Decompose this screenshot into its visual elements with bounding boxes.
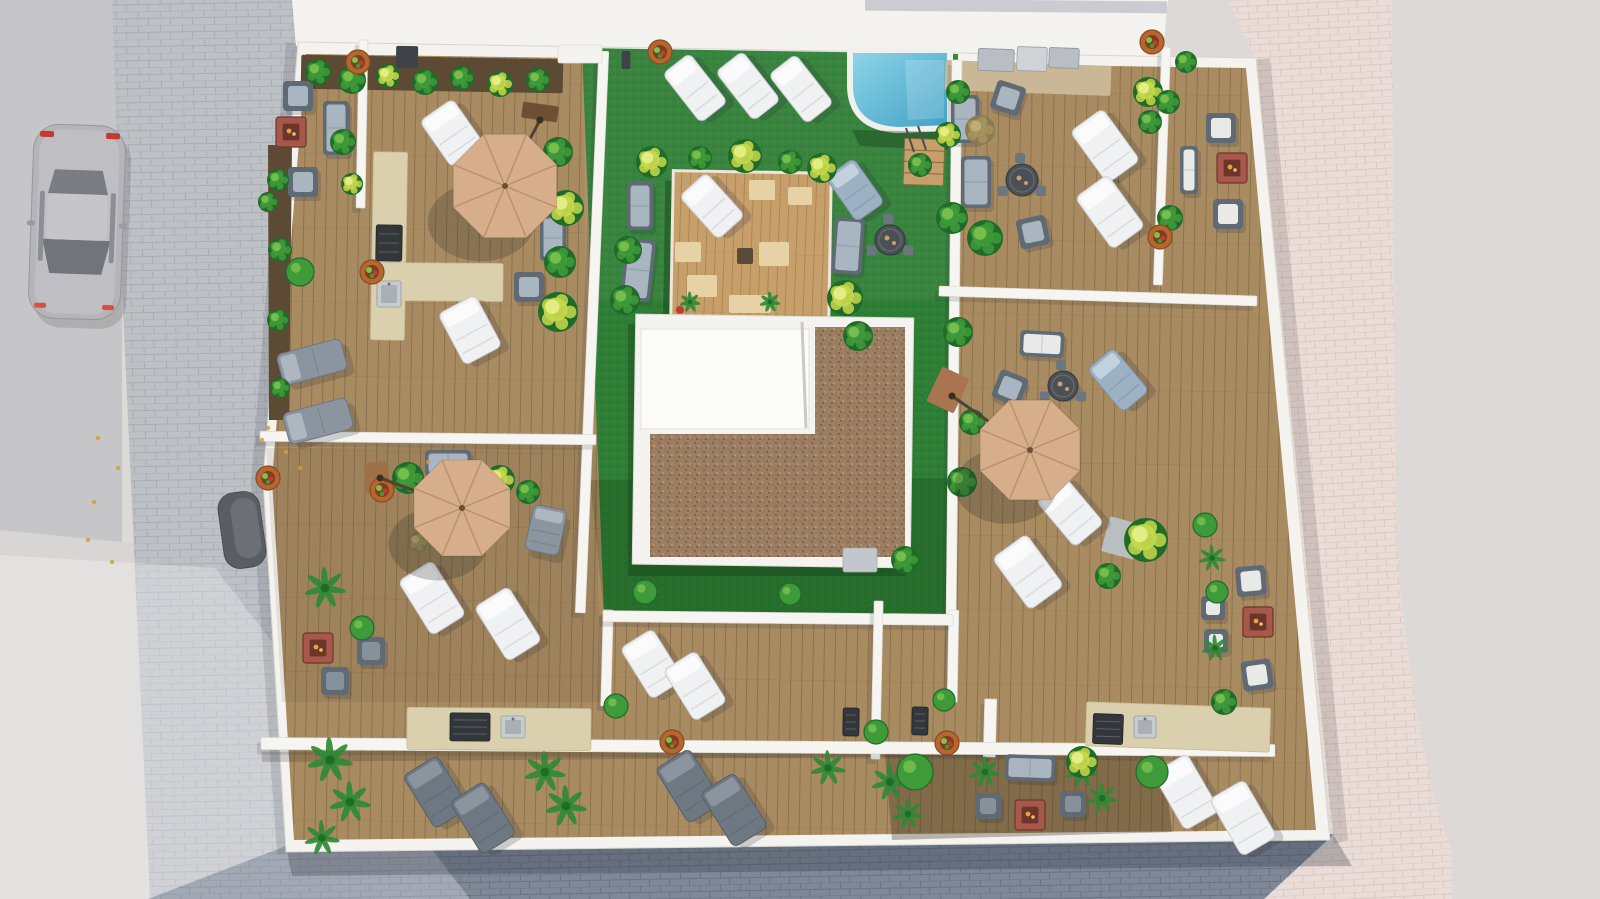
plant-bush — [614, 236, 642, 264]
plant-boxwood — [286, 258, 314, 286]
plant-bush — [450, 66, 474, 90]
sofa — [1019, 330, 1068, 362]
plant-bush — [1124, 518, 1168, 562]
plant-bush — [305, 59, 331, 85]
bbq-grill — [912, 707, 928, 735]
plant-bush — [1066, 746, 1098, 778]
plant-boxwood — [1136, 756, 1168, 788]
plant-bush — [258, 192, 278, 212]
armchair — [1206, 113, 1239, 147]
wall-pillar — [558, 45, 602, 63]
armchair — [975, 793, 1004, 823]
plant-bush — [267, 309, 289, 331]
plant-bush — [946, 80, 970, 104]
plant-bush — [688, 146, 712, 170]
plant-bush — [908, 153, 932, 177]
fallen-leaf — [116, 466, 120, 470]
armchair — [288, 167, 321, 201]
plant-bush — [935, 122, 961, 148]
fallen-leaf — [92, 500, 96, 504]
plant-bush — [936, 202, 968, 234]
garden-light-bollard — [622, 51, 631, 69]
kitchen-sink — [1134, 716, 1156, 738]
flower-pot — [935, 731, 959, 755]
sofa — [1180, 146, 1201, 198]
bbq-grill — [843, 708, 859, 736]
utility-box — [843, 548, 877, 572]
plant-bush — [728, 139, 762, 173]
seat-cushion — [675, 242, 701, 262]
armchair — [283, 81, 316, 115]
kitchen-sink — [501, 716, 525, 738]
plant-bush — [1156, 90, 1180, 114]
plant-bush — [341, 173, 363, 195]
plant-bush — [967, 220, 1003, 256]
plant-bush — [843, 321, 873, 351]
armchair — [357, 637, 388, 669]
roof-skylight — [1017, 46, 1048, 71]
plant-boxwood — [604, 694, 628, 718]
flower-pot — [256, 466, 280, 490]
fallen-leaf — [96, 436, 100, 440]
armchair — [321, 667, 352, 699]
flower-pot — [346, 50, 370, 74]
plant-boxwood — [864, 720, 888, 744]
bbq-grill — [450, 713, 490, 741]
roof-skylight — [978, 48, 1015, 71]
seat-cushion — [788, 187, 812, 205]
roof-skylight — [1049, 47, 1080, 68]
pool-shelf — [905, 60, 944, 120]
sofa — [1004, 754, 1058, 786]
fallen-leaf — [110, 560, 114, 564]
seat-cushion — [749, 180, 775, 200]
fallen-leaf — [266, 426, 270, 430]
plant-bush — [1138, 110, 1162, 134]
flower-pot — [360, 260, 384, 284]
plant-bush — [807, 153, 837, 183]
plant-bush — [268, 238, 292, 262]
fire-table — [1015, 800, 1045, 830]
parked-car — [23, 123, 132, 329]
plant-bush — [544, 246, 576, 278]
flower-pot — [1140, 30, 1164, 54]
stairwell-roof — [641, 329, 809, 429]
plant-bush — [412, 69, 438, 95]
armchair — [1235, 564, 1271, 601]
armchair — [1213, 199, 1246, 233]
plant-bush — [1175, 51, 1197, 73]
plant-bush — [267, 169, 289, 191]
plant-bush — [376, 64, 400, 88]
plant-bush — [1211, 689, 1237, 715]
aerial-render-stage — [0, 0, 1600, 899]
sofa — [961, 156, 994, 212]
fire-table — [276, 117, 306, 147]
seat-cushion — [687, 275, 717, 297]
plant-bush — [1095, 563, 1121, 589]
fallen-leaf — [284, 450, 288, 454]
plant-bush — [538, 292, 578, 332]
plant-bush — [965, 115, 995, 145]
scene-svg — [0, 0, 1600, 899]
plant-boxwood — [933, 689, 955, 711]
kitchen-counter — [407, 707, 591, 750]
kitchen-sink — [377, 281, 401, 307]
fallen-leaf — [86, 538, 90, 542]
sofa — [627, 182, 656, 234]
plant-bush — [516, 480, 540, 504]
flower-pot — [660, 730, 684, 754]
armchair — [1240, 658, 1277, 696]
plant-boxwood — [779, 583, 801, 605]
flower-pot — [1148, 225, 1172, 249]
plant-boxwood — [633, 580, 657, 604]
fallen-leaf — [426, 460, 430, 464]
seat-cushion — [759, 242, 789, 266]
fire-table — [1243, 607, 1273, 637]
armchair — [1060, 791, 1089, 821]
plant-bush — [487, 71, 513, 97]
coffee-table — [737, 248, 753, 264]
plant-bush — [778, 150, 802, 174]
plant-boxwood — [897, 754, 933, 790]
fire-table — [303, 633, 333, 663]
plant-bush — [610, 285, 640, 315]
sofa — [831, 217, 868, 279]
plant-boxwood — [350, 616, 374, 640]
plant-bush — [636, 146, 668, 178]
bbq-grill — [1092, 713, 1123, 744]
plant-bush — [330, 129, 356, 155]
plant-bush — [526, 68, 550, 92]
plant-bush — [827, 280, 863, 316]
bbq-grill — [376, 225, 403, 261]
plant-boxwood — [1193, 513, 1217, 537]
plant-bush — [270, 378, 290, 398]
flower-pot — [648, 40, 672, 64]
decor-item — [676, 306, 684, 314]
fallen-leaf — [298, 466, 302, 470]
plant-bush — [891, 546, 919, 574]
roof-hatch — [396, 46, 418, 68]
plant-boxwood — [1206, 581, 1228, 603]
fire-table — [1217, 153, 1247, 183]
plant-bush — [943, 317, 973, 347]
fallen-leaf — [260, 438, 264, 442]
